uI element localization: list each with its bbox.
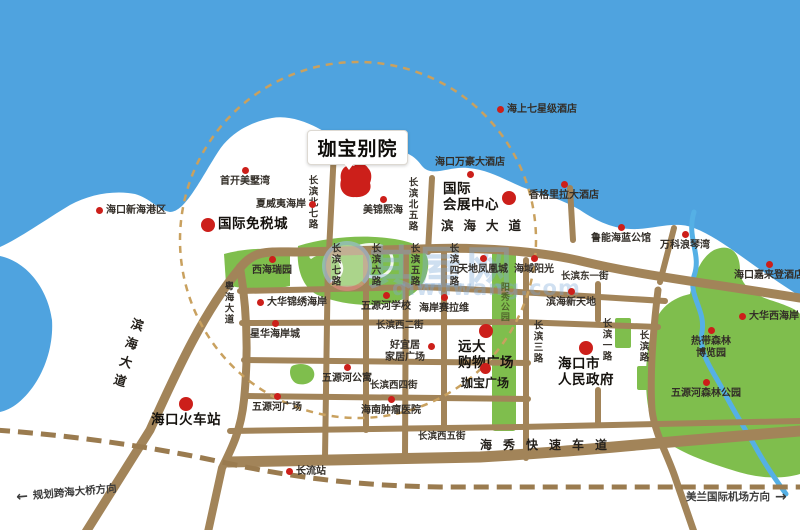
poi-dahua-xihaian: 大华西海岸 — [739, 311, 799, 323]
poi-wuyuanhe-apartment: 五源河公寓 — [322, 364, 372, 385]
marker-dot — [561, 181, 568, 188]
poi-haikou-xinhai-port: 海口新海港区 — [96, 205, 166, 217]
poi-label-lines: 五源河公寓 — [322, 373, 372, 385]
poi-xinghua-haian-city: 星华海岸城 — [250, 320, 300, 341]
marker-dot — [531, 255, 538, 262]
road-binhai-dadao-v: 滨海大道 — [108, 316, 144, 395]
poi-label: 大华锦绣海岸 — [267, 297, 327, 309]
poi-meijin-xihai: 美锦熙海 — [363, 196, 403, 217]
poi-label-lines: 海口市人民政府 — [558, 357, 614, 389]
road-changbin-lu: 长滨路 — [637, 330, 647, 363]
poi-label: 人民政府 — [558, 373, 614, 389]
poi-label: 远大 — [458, 340, 514, 356]
arrow-right-icon: → — [775, 490, 787, 504]
poi-label: 鲁能海蓝公馆 — [591, 233, 651, 245]
marker-dot — [467, 171, 474, 178]
poi-label-lines: 五源河广场 — [252, 402, 302, 414]
poi-label-lines: 滨海新天地 — [546, 297, 596, 309]
poi-label: 海口新海港区 — [106, 205, 166, 217]
poi-label-lines: 国际免税城 — [218, 217, 288, 233]
poi-label: 海南肿瘤医院 — [361, 405, 421, 417]
poi-label-lines: 海南肿瘤医院 — [361, 405, 421, 417]
marker-dot — [179, 397, 193, 411]
poi-haikou-jialaideng-hotel: 海口嘉来登酒店 — [734, 261, 800, 282]
poi-label-lines: 海域阳光 — [514, 264, 554, 276]
poi-label: 海域阳光 — [514, 264, 554, 276]
poi-changliu-station: 长流站 — [286, 466, 326, 478]
road-changbin-7: 长滨七路 — [329, 243, 339, 287]
project-title-callout: 珈宝别院 — [307, 130, 408, 165]
marker-dot — [388, 396, 395, 403]
marker-dot — [479, 363, 490, 374]
poi-label: 国际免税城 — [218, 217, 288, 233]
poi-label-lines: 夏威夷海岸 — [256, 199, 306, 211]
location-map: 其屋网 qiwuwang.com 珈宝别院 海口新海港区首开美墅湾夏威夷海岸美锦… — [0, 0, 800, 530]
marker-dot — [479, 324, 493, 338]
poi-haikou-wanhao-hotel: 海口万豪大酒店 — [435, 157, 505, 178]
poi-label: 天地凤凰城 — [458, 264, 508, 276]
poi-label: 大华西海岸 — [749, 311, 799, 323]
direction-meilan-airport: 美兰国际机场方向→ — [686, 489, 787, 504]
poi-label: 万科浪琴湾 — [660, 240, 710, 252]
poi-binhai-xintiandi: 滨海新天地 — [546, 288, 596, 309]
poi-label: 星华海岸城 — [250, 329, 300, 341]
poi-label-lines: 国际会展中心 — [443, 182, 499, 214]
poi-label: 珈宝广场 — [461, 376, 509, 390]
marker-dot — [286, 468, 293, 475]
poi-label-lines: 长流站 — [296, 466, 326, 478]
marker-dot — [242, 167, 249, 174]
poi-shoukai-meishuwan: 首开美墅湾 — [220, 167, 270, 188]
poi-label: 五源河广场 — [252, 402, 302, 414]
poi-label-lines: 五源河森林公园 — [671, 388, 741, 400]
direction-cross-sea-bridge: ←规划跨海大桥方向 — [16, 481, 118, 505]
poi-label-lines: 珈宝广场 — [461, 376, 509, 390]
poi-label: 家居广场 — [385, 352, 425, 364]
marker-dot — [201, 218, 215, 232]
poi-haian-sailawei: 海岸赛拉维 — [419, 294, 469, 315]
poi-label: 五源河学校 — [361, 301, 411, 313]
marker-dot — [502, 191, 516, 205]
poi-label: 会展中心 — [443, 198, 499, 214]
road-yuehai-dadao: 粤海大道 — [222, 281, 232, 325]
poi-label: 国际 — [443, 182, 499, 198]
poi-xihai-ruiyuan: 西海瑞园 — [252, 256, 292, 277]
marker-dot — [703, 379, 710, 386]
poi-haishang-seven-star-hotel: 海上七星级酒店 — [497, 104, 577, 116]
poi-luneng-hailan-mansion: 鲁能海蓝公馆 — [591, 224, 651, 245]
road-changbin-west-4th: 长滨西四街 — [370, 381, 418, 391]
marker-dot — [344, 364, 351, 371]
marker-dot — [272, 320, 279, 327]
marker-dot — [274, 393, 281, 400]
marker-dot — [480, 255, 487, 262]
road-changbin-3: 长滨三路 — [531, 320, 541, 364]
marker-dot — [682, 231, 689, 238]
marker-dot — [96, 207, 103, 214]
poi-label-lines: 海口火车站 — [151, 413, 221, 429]
poi-label: 滨海新天地 — [546, 297, 596, 309]
road-changbin-4: 长滨四路 — [447, 243, 457, 287]
direction-label: 规划跨海大桥方向 — [32, 481, 117, 503]
poi-label-lines: 海口万豪大酒店 — [435, 157, 505, 169]
poi-label-lines: 鲁能海蓝公馆 — [591, 233, 651, 245]
marker-dot — [708, 327, 715, 334]
poi-label-lines: 海岸赛拉维 — [419, 303, 469, 315]
marker-dot — [739, 313, 746, 320]
poi-label: 博览园 — [691, 348, 731, 360]
poi-label: 海口市 — [558, 357, 614, 373]
marker-dot — [380, 196, 387, 203]
poi-hainan-tumor-hospital: 海南肿瘤医院 — [361, 396, 421, 417]
arrow-left-icon: ← — [16, 489, 29, 504]
road-changbin-6: 长滨六路 — [369, 243, 379, 287]
park-yangxiu-label: 阳秀公园 — [498, 282, 508, 322]
road-changbin-west-2nd: 长滨西二街 — [376, 321, 424, 331]
poi-label-lines: 好宜居家居广场 — [385, 340, 425, 364]
road-changbin-west-5th: 长滨西五街 — [418, 432, 466, 442]
road-haixiu-expressway: 海秀快速车道 — [480, 439, 618, 452]
poi-label: 香格里拉大酒店 — [529, 190, 599, 202]
marker-dot — [618, 224, 625, 231]
road-binhai-dadao-h: 滨海大道 — [441, 219, 531, 233]
poi-vanke-langqinwan: 万科浪琴湾 — [660, 231, 710, 252]
poi-label-lines: 热带森林博览园 — [691, 336, 731, 360]
poi-label: 海上七星级酒店 — [507, 104, 577, 116]
marker-dot — [309, 201, 316, 208]
direction-label: 美兰国际机场方向 — [686, 489, 770, 504]
marker-dot — [497, 106, 504, 113]
poi-haikou-city-government: 海口市人民政府 — [558, 341, 614, 389]
poi-international-exhibition-center: 国际会展中心 — [443, 182, 516, 214]
poi-label: 海岸赛拉维 — [419, 303, 469, 315]
poi-label-lines: 海上七星级酒店 — [507, 104, 577, 116]
poi-label-lines: 海口新海港区 — [106, 205, 166, 217]
poi-wuyuanhe-school: 五源河学校 — [361, 292, 411, 313]
poi-label: 五源河公寓 — [322, 373, 372, 385]
road-changbin-5: 长滨五路 — [408, 243, 418, 287]
poi-label-lines: 万科浪琴湾 — [660, 240, 710, 252]
poi-wuyuanhe-forest-park: 五源河森林公园 — [671, 379, 741, 400]
poi-label: 海口万豪大酒店 — [435, 157, 505, 169]
poi-label: 西海瑞园 — [252, 265, 292, 277]
poi-label-lines: 海口嘉来登酒店 — [734, 270, 800, 282]
poi-label-lines: 大华锦绣海岸 — [267, 297, 327, 309]
poi-xianggelila-hotel: 香格里拉大酒店 — [529, 181, 599, 202]
marker-dot — [441, 294, 448, 301]
poi-label-lines: 香格里拉大酒店 — [529, 190, 599, 202]
poi-haikou-railway-station: 海口火车站 — [151, 397, 221, 429]
poi-tiandi-phoenix-city: 天地凤凰城 — [458, 255, 508, 276]
marker-dot — [428, 343, 435, 350]
marker-dot — [579, 341, 593, 355]
poi-xiaweiyi-haian: 夏威夷海岸 — [256, 199, 316, 211]
poi-label-lines: 五源河学校 — [361, 301, 411, 313]
poi-haiyu-yangguang: 海域阳光 — [514, 255, 554, 276]
road-changbin-north-5: 长滨北五路 — [406, 177, 416, 232]
marker-dot — [568, 288, 575, 295]
poi-label: 海口火车站 — [151, 413, 221, 429]
marker-dot — [383, 292, 390, 299]
poi-label-lines: 西海瑞园 — [252, 265, 292, 277]
marker-dot — [766, 261, 773, 268]
marker-dot — [269, 256, 276, 263]
poi-label-lines: 星华海岸城 — [250, 329, 300, 341]
poi-wuyuanhe-plaza: 五源河广场 — [252, 393, 302, 414]
poi-dahua-jinxiu-haian: 大华锦绣海岸 — [257, 297, 327, 309]
poi-label: 好宜居 — [385, 340, 425, 352]
poi-label: 海口嘉来登酒店 — [734, 270, 800, 282]
poi-label: 长流站 — [296, 466, 326, 478]
poi-label: 热带森林 — [691, 336, 731, 348]
poi-label-lines: 首开美墅湾 — [220, 176, 270, 188]
poi-label-lines: 大华西海岸 — [749, 311, 799, 323]
poi-tropical-forest-expo-garden: 热带森林博览园 — [691, 327, 731, 360]
poi-label: 首开美墅湾 — [220, 176, 270, 188]
poi-jiabao-plaza: 珈宝广场 — [461, 363, 509, 390]
poi-label-lines: 天地凤凰城 — [458, 264, 508, 276]
poi-label: 五源河森林公园 — [671, 388, 741, 400]
road-changbin-east-1st: 长滨东一街 — [561, 272, 609, 282]
callout-tail — [343, 162, 355, 170]
poi-international-duty-free-city: 国际免税城 — [201, 217, 288, 233]
poi-label-lines: 美锦熙海 — [363, 205, 403, 217]
poi-label: 美锦熙海 — [363, 205, 403, 217]
marker-dot — [257, 299, 264, 306]
poi-label: 夏威夷海岸 — [256, 199, 306, 211]
poi-haoyiju-home-plaza: 好宜居家居广场 — [385, 340, 435, 364]
